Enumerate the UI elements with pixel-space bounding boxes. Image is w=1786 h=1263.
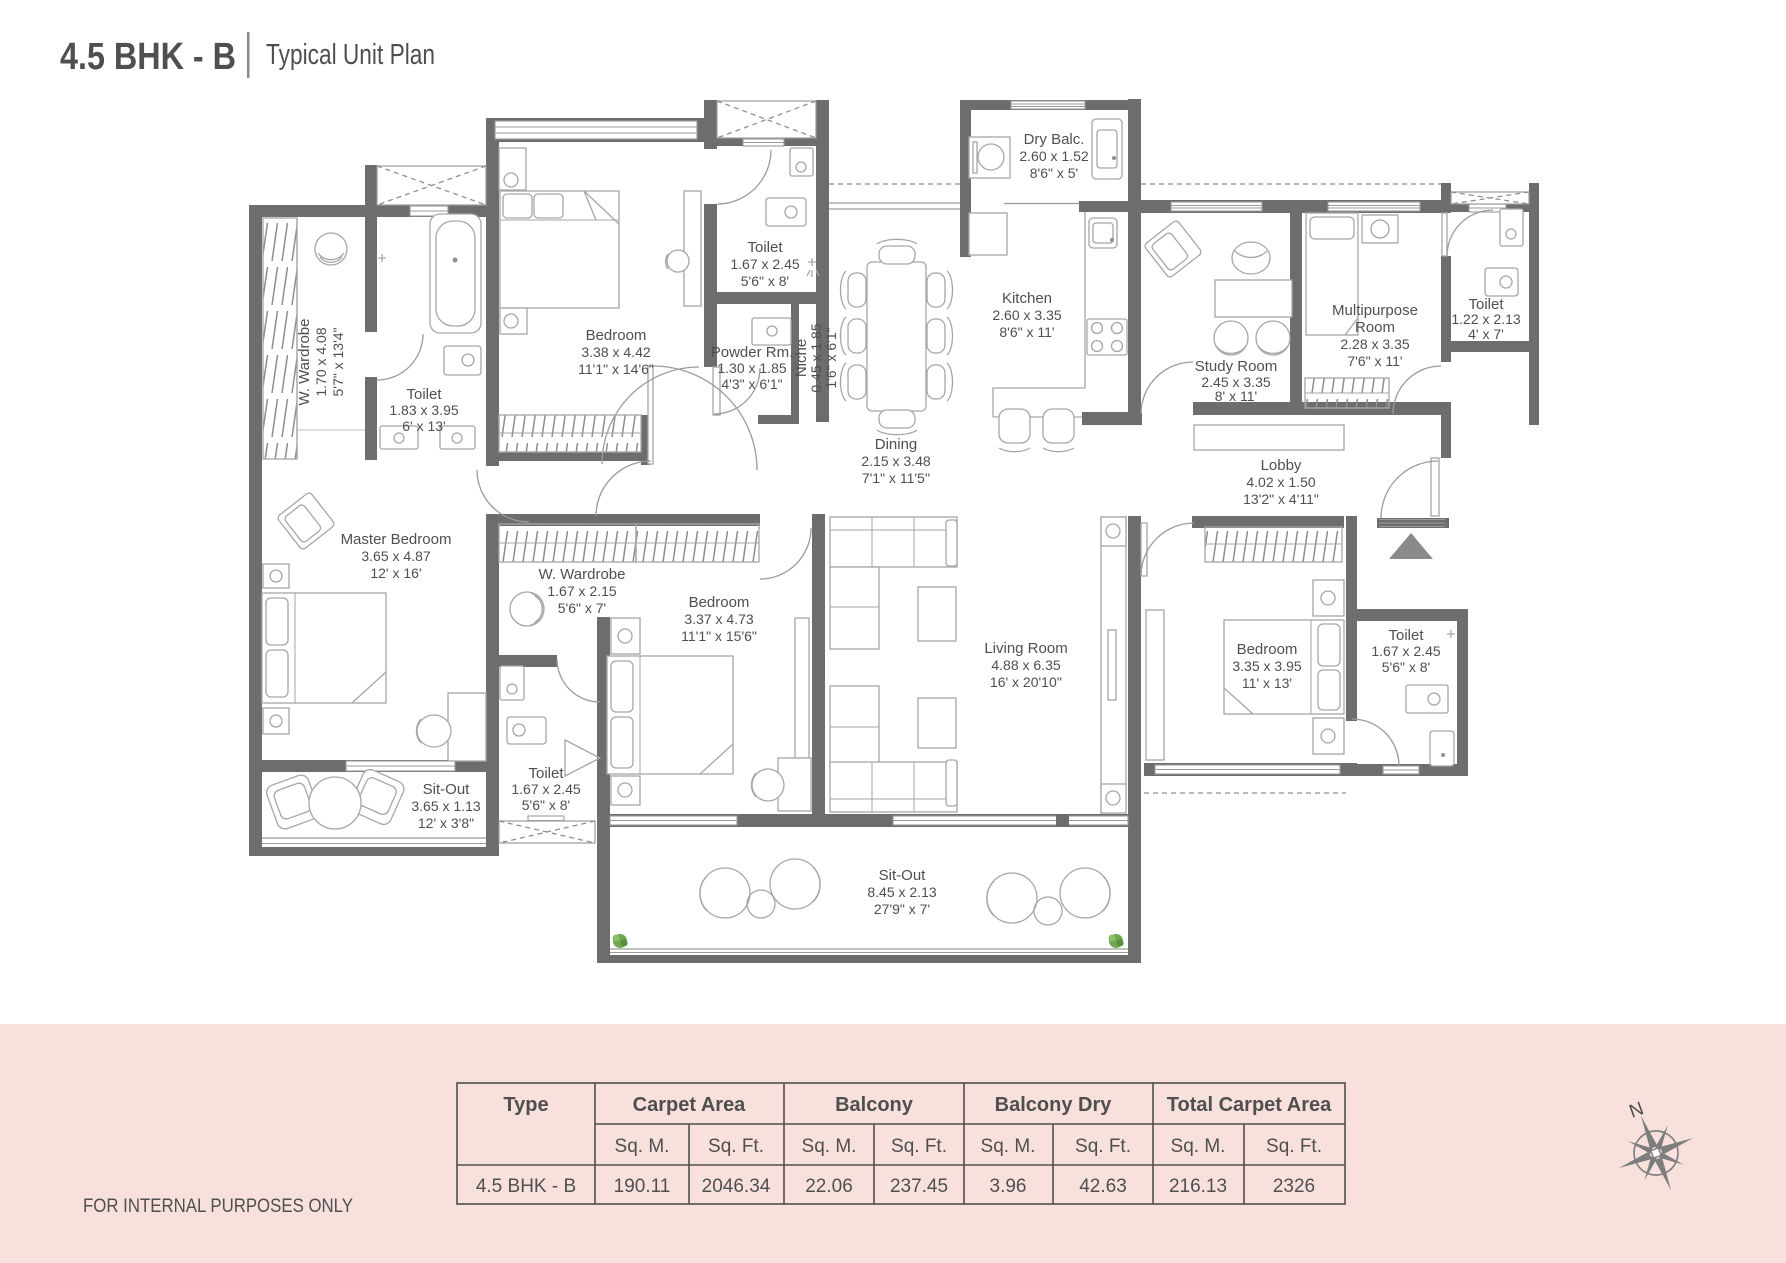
svg-text:Sq. Ft.: Sq. Ft. — [708, 1136, 764, 1157]
svg-text:Living Room: Living Room — [984, 640, 1067, 657]
svg-text:1.67 x 2.15: 1.67 x 2.15 — [547, 583, 616, 599]
svg-text:2326: 2326 — [1273, 1176, 1315, 1197]
svg-text:1.67 x 2.45: 1.67 x 2.45 — [1371, 643, 1440, 659]
svg-text:12' x 16': 12' x 16' — [370, 565, 421, 581]
svg-text:Carpet Area: Carpet Area — [633, 1094, 747, 1116]
svg-text:Sq. M.: Sq. M. — [981, 1136, 1036, 1157]
svg-text:3.37 x 4.73: 3.37 x 4.73 — [684, 611, 753, 627]
svg-text:16' x 20'10'': 16' x 20'10'' — [990, 674, 1062, 690]
svg-text:3.65 x 4.87: 3.65 x 4.87 — [361, 548, 430, 564]
svg-text:Toilet: Toilet — [747, 239, 783, 256]
svg-text:8' x 11': 8' x 11' — [1215, 388, 1257, 404]
svg-text:2.60 x 3.35: 2.60 x 3.35 — [992, 307, 1061, 323]
svg-text:W. Wardrobe: W. Wardrobe — [539, 566, 626, 583]
svg-text:5'6" x 8': 5'6" x 8' — [741, 273, 789, 289]
svg-text:8'6" x 11': 8'6" x 11' — [999, 324, 1054, 340]
svg-text:Bedroom: Bedroom — [586, 327, 647, 344]
svg-text:216.13: 216.13 — [1169, 1176, 1227, 1197]
svg-text:2.60 x 1.52: 2.60 x 1.52 — [1019, 148, 1088, 164]
svg-text:5'6" x 8': 5'6" x 8' — [522, 797, 570, 813]
svg-text:5'7" x 13'4": 5'7" x 13'4" — [330, 327, 346, 396]
svg-text:22.06: 22.06 — [805, 1176, 853, 1197]
svg-text:11'1" x 15'6": 11'1" x 15'6" — [681, 628, 757, 644]
svg-text:4.02 x 1.50: 4.02 x 1.50 — [1246, 474, 1315, 490]
svg-text:6' x 13': 6' x 13' — [402, 418, 445, 434]
svg-text:Sq. Ft.: Sq. Ft. — [1266, 1136, 1322, 1157]
svg-text:Sq. M.: Sq. M. — [615, 1136, 670, 1157]
svg-text:2.15 x 3.48: 2.15 x 3.48 — [861, 453, 930, 469]
svg-text:Type: Type — [503, 1094, 548, 1116]
svg-text:Dining: Dining — [875, 436, 918, 453]
svg-text:Balcony Dry: Balcony Dry — [995, 1094, 1113, 1116]
svg-text:190.11: 190.11 — [614, 1176, 671, 1197]
svg-text:2.28 x 3.35: 2.28 x 3.35 — [1340, 336, 1409, 352]
svg-text:3.65 x 1.13: 3.65 x 1.13 — [411, 798, 480, 814]
svg-text:Total Carpet Area: Total Carpet Area — [1167, 1094, 1332, 1116]
svg-text:4'3" x 6'1": 4'3" x 6'1" — [721, 376, 782, 392]
svg-text:8.45 x 2.13: 8.45 x 2.13 — [867, 884, 936, 900]
svg-text:1.83 x 3.95: 1.83 x 3.95 — [389, 402, 458, 418]
svg-text:1'6" x 6'1": 1'6" x 6'1" — [823, 327, 839, 388]
svg-text:Kitchen: Kitchen — [1002, 290, 1052, 307]
svg-text:Typical Unit Plan: Typical Unit Plan — [266, 39, 435, 71]
svg-text:7'1" x 11'5'': 7'1" x 11'5'' — [862, 470, 930, 486]
svg-text:W. Wardrobe: W. Wardrobe — [296, 319, 313, 406]
svg-text:0.45 x 1.85: 0.45 x 1.85 — [808, 323, 824, 392]
svg-text:4.5 BHK - B: 4.5 BHK - B — [60, 36, 236, 78]
svg-text:Study Room: Study Room — [1195, 358, 1278, 375]
svg-text:Master Bedroom: Master Bedroom — [341, 531, 452, 548]
svg-text:Room: Room — [1355, 319, 1395, 336]
svg-text:8'6" x 5': 8'6" x 5' — [1030, 165, 1078, 181]
svg-text:1.70 x 4.08: 1.70 x 4.08 — [313, 327, 329, 396]
svg-text:Sit-Out: Sit-Out — [879, 867, 927, 884]
svg-text:27'9" x 7': 27'9" x 7' — [874, 901, 930, 917]
svg-text:Sq. M.: Sq. M. — [802, 1136, 857, 1157]
svg-text:1.22 x 2.13: 1.22 x 2.13 — [1451, 311, 1520, 327]
svg-text:Powder Rm.: Powder Rm. — [711, 344, 794, 361]
svg-text:Toilet: Toilet — [1388, 627, 1424, 644]
svg-text:5'6" x 7': 5'6" x 7' — [558, 600, 606, 616]
svg-text:42.63: 42.63 — [1079, 1176, 1127, 1197]
svg-text:Sq. M.: Sq. M. — [1171, 1136, 1226, 1157]
svg-text:1.67 x 2.45: 1.67 x 2.45 — [511, 781, 580, 797]
svg-text:3.35 x 3.95: 3.35 x 3.95 — [1232, 658, 1301, 674]
svg-text:13'2" x 4'11": 13'2" x 4'11" — [1243, 491, 1319, 507]
svg-text:Bedroom: Bedroom — [689, 594, 750, 611]
svg-text:Sit-Out: Sit-Out — [423, 781, 471, 798]
svg-text:11' x 13': 11' x 13' — [1242, 675, 1292, 691]
svg-text:12' x 3'8": 12' x 3'8" — [418, 815, 474, 831]
svg-text:1.30 x 1.85: 1.30 x 1.85 — [717, 360, 786, 376]
svg-text:Toilet: Toilet — [528, 765, 564, 782]
svg-text:4.5 BHK - B: 4.5 BHK - B — [476, 1176, 576, 1197]
svg-text:Sq. Ft.: Sq. Ft. — [891, 1136, 947, 1157]
svg-text:11'1" x 14'6": 11'1" x 14'6" — [578, 361, 654, 377]
svg-text:7'6" x 11': 7'6" x 11' — [1347, 353, 1402, 369]
svg-text:Dry Balc.: Dry Balc. — [1024, 131, 1085, 148]
svg-text:237.45: 237.45 — [890, 1176, 948, 1197]
svg-text:Lobby: Lobby — [1261, 457, 1302, 474]
svg-text:Sq. Ft.: Sq. Ft. — [1075, 1136, 1131, 1157]
svg-text:Balcony: Balcony — [835, 1094, 914, 1116]
svg-text:Toilet: Toilet — [406, 386, 442, 403]
svg-text:4.88 x 6.35: 4.88 x 6.35 — [991, 657, 1060, 673]
svg-text:3.38 x 4.42: 3.38 x 4.42 — [581, 344, 650, 360]
svg-text:4' x 7': 4' x 7' — [1468, 326, 1504, 342]
svg-text:3.96: 3.96 — [990, 1176, 1027, 1197]
svg-text:Bedroom: Bedroom — [1237, 641, 1298, 658]
svg-text:1.67 x 2.45: 1.67 x 2.45 — [730, 256, 799, 272]
svg-text:2046.34: 2046.34 — [702, 1176, 771, 1197]
svg-text:FOR INTERNAL PURPOSES ONLY: FOR INTERNAL PURPOSES ONLY — [83, 1195, 353, 1217]
svg-text:5'6" x 8': 5'6" x 8' — [1382, 659, 1430, 675]
svg-text:Multipurpose: Multipurpose — [1332, 302, 1418, 319]
